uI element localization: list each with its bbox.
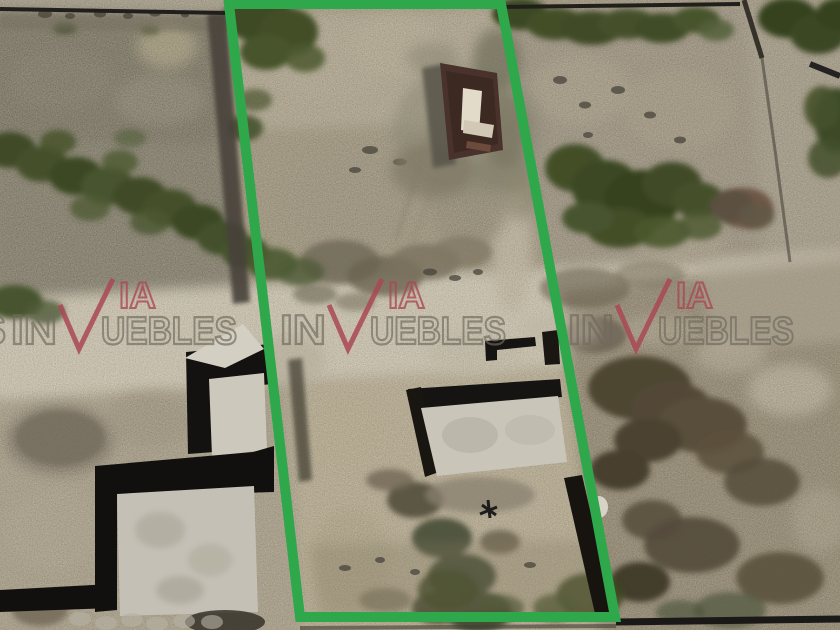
svg-text:UEBLES: UEBLES xyxy=(658,310,794,353)
svg-text:UEBLES: UEBLES xyxy=(101,310,237,353)
svg-text:IA: IA xyxy=(388,275,425,316)
svg-text:IN: IN xyxy=(568,306,614,353)
svg-text:UEBLES: UEBLES xyxy=(370,310,506,353)
svg-text:IN: IN xyxy=(11,306,57,353)
svg-text:IN: IN xyxy=(280,306,326,353)
svg-text:IA: IA xyxy=(676,275,713,316)
svg-text:S: S xyxy=(0,306,6,353)
svg-text:IA: IA xyxy=(119,275,156,316)
